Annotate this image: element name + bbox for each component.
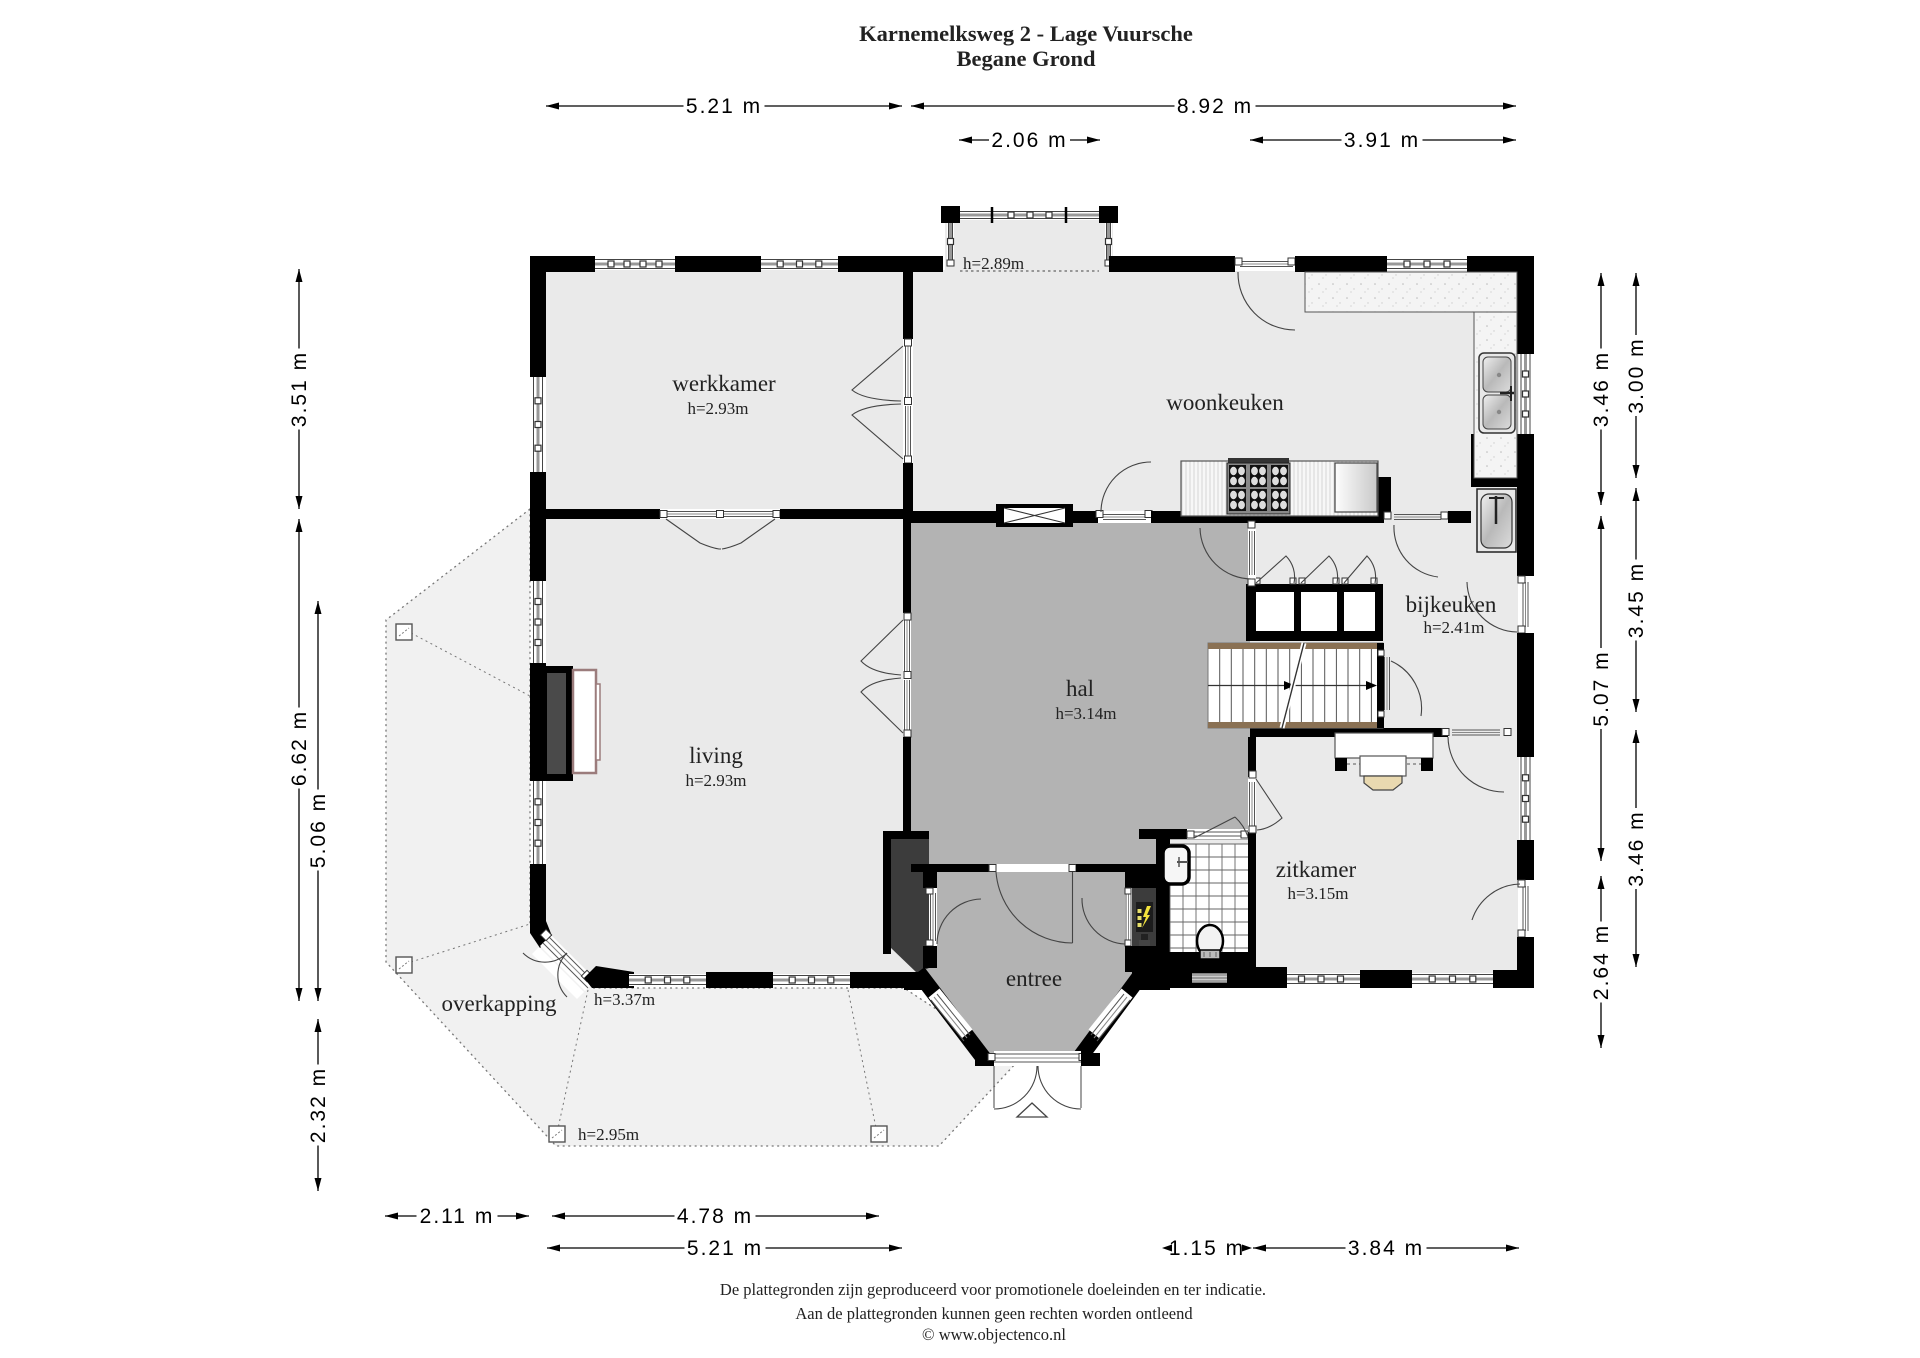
svg-text:Begane Grond: Begane Grond bbox=[957, 46, 1096, 71]
svg-text:3.00 m: 3.00 m bbox=[1625, 337, 1648, 413]
svg-text:h=2.41m: h=2.41m bbox=[1423, 618, 1484, 637]
svg-text:4.78 m: 4.78 m bbox=[677, 1205, 753, 1228]
svg-text:zitkamer: zitkamer bbox=[1276, 857, 1357, 882]
svg-text:3.91 m: 3.91 m bbox=[1344, 129, 1420, 152]
svg-text:h=3.15m: h=3.15m bbox=[1287, 884, 1348, 903]
svg-text:6.62 m: 6.62 m bbox=[288, 710, 311, 786]
svg-text:h=2.93m: h=2.93m bbox=[687, 399, 748, 418]
svg-text:living: living bbox=[689, 743, 743, 768]
svg-text:8.92 m: 8.92 m bbox=[1177, 95, 1253, 118]
svg-text:1.15 m: 1.15 m bbox=[1169, 1237, 1245, 1260]
svg-text:overkapping: overkapping bbox=[442, 991, 557, 1016]
svg-text:5.06 m: 5.06 m bbox=[307, 792, 330, 868]
svg-text:2.11 m: 2.11 m bbox=[420, 1205, 495, 1228]
svg-text:woonkeuken: woonkeuken bbox=[1166, 390, 1284, 415]
svg-text:5.07 m: 5.07 m bbox=[1590, 650, 1613, 726]
svg-text:bijkeuken: bijkeuken bbox=[1406, 592, 1497, 617]
svg-text:3.51 m: 3.51 m bbox=[288, 351, 311, 427]
svg-text:h=2.89m: h=2.89m bbox=[963, 254, 1024, 273]
svg-text:5.21 m: 5.21 m bbox=[687, 1237, 763, 1260]
svg-text:werkkamer: werkkamer bbox=[672, 371, 776, 396]
svg-text:3.84 m: 3.84 m bbox=[1348, 1237, 1424, 1260]
svg-text:Karnemelksweg 2 - Lage Vuursch: Karnemelksweg 2 - Lage Vuursche bbox=[859, 21, 1193, 46]
svg-text:2.32 m: 2.32 m bbox=[307, 1067, 330, 1143]
svg-text:2.06 m: 2.06 m bbox=[991, 129, 1067, 152]
svg-text:h=3.14m: h=3.14m bbox=[1055, 704, 1116, 723]
svg-text:h=2.93m: h=2.93m bbox=[685, 771, 746, 790]
svg-text:2.64 m: 2.64 m bbox=[1590, 924, 1613, 1000]
svg-text:3.46 m: 3.46 m bbox=[1625, 810, 1648, 886]
svg-text:hal: hal bbox=[1066, 676, 1094, 701]
svg-text:Aan de plattegronden kunnen ge: Aan de plattegronden kunnen geen rechten… bbox=[795, 1304, 1193, 1323]
svg-text:5.21 m: 5.21 m bbox=[686, 95, 762, 118]
svg-text:entree: entree bbox=[1006, 966, 1062, 991]
svg-text:h=3.37m: h=3.37m bbox=[594, 990, 655, 1009]
svg-text:h=2.95m: h=2.95m bbox=[578, 1125, 639, 1144]
svg-text:© www.objectenco.nl: © www.objectenco.nl bbox=[922, 1325, 1066, 1344]
svg-text:3.45 m: 3.45 m bbox=[1625, 562, 1648, 638]
svg-text:De plattegronden zijn geproduc: De plattegronden zijn geproduceerd voor … bbox=[720, 1280, 1266, 1299]
svg-text:3.46 m: 3.46 m bbox=[1590, 351, 1613, 427]
